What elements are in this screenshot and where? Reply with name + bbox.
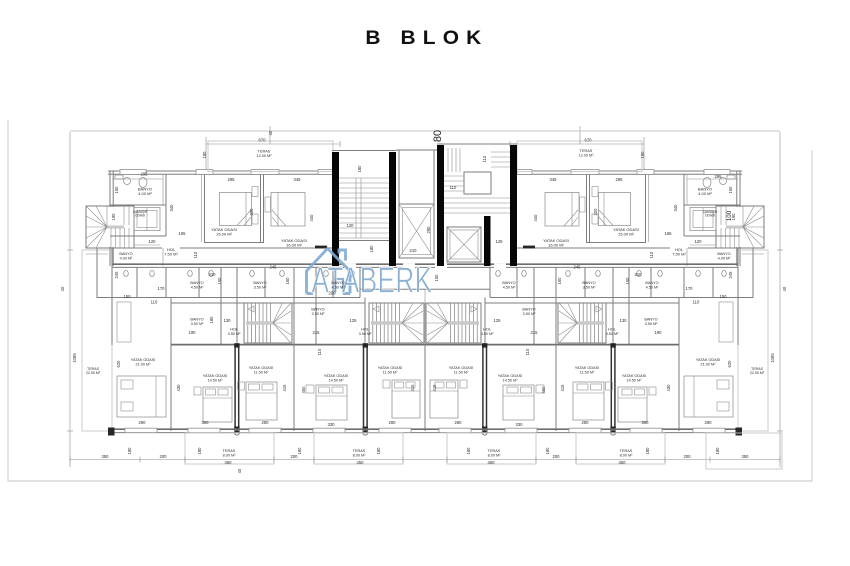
svg-text:180: 180 — [369, 245, 374, 253]
svg-text:350: 350 — [102, 454, 110, 459]
svg-text:190: 190 — [189, 330, 197, 335]
svg-text:150: 150 — [217, 277, 222, 285]
svg-text:170: 170 — [686, 286, 694, 291]
svg-text:245: 245 — [114, 271, 119, 279]
svg-text:110: 110 — [525, 348, 530, 355]
svg-text:295: 295 — [228, 177, 236, 182]
svg-text:415: 415 — [410, 384, 415, 392]
svg-text:ODASI: ODASI — [705, 214, 715, 218]
svg-text:290: 290 — [139, 420, 147, 425]
svg-text:280: 280 — [389, 420, 397, 425]
svg-text:620: 620 — [727, 360, 732, 368]
svg-text:350: 350 — [742, 454, 750, 459]
svg-text:330: 330 — [516, 422, 524, 427]
svg-text:320: 320 — [593, 208, 598, 216]
svg-text:290: 290 — [329, 291, 337, 296]
svg-text:110: 110 — [450, 185, 457, 190]
svg-text:120: 120 — [347, 223, 355, 228]
svg-text:22.50 M²: 22.50 M² — [86, 371, 101, 375]
svg-text:8.00 M²: 8.00 M² — [488, 453, 502, 457]
svg-text:215: 215 — [531, 330, 539, 335]
svg-text:450: 450 — [488, 460, 496, 465]
svg-text:130: 130 — [620, 318, 628, 323]
svg-text:TERAS: TERAS — [620, 449, 633, 453]
svg-text:3.50 M²: 3.50 M² — [228, 332, 242, 336]
svg-text:440: 440 — [533, 214, 538, 222]
svg-text:150: 150 — [625, 277, 630, 285]
svg-text:BANYO: BANYO — [645, 281, 658, 285]
svg-text:40: 40 — [782, 286, 787, 291]
svg-text:YATAK ODASI: YATAK ODASI — [449, 366, 473, 370]
svg-text:3.50 M²: 3.50 M² — [523, 312, 537, 316]
svg-text:3.50 M²: 3.50 M² — [191, 322, 205, 326]
svg-text:40: 40 — [60, 286, 65, 291]
svg-text:TERAS: TERAS — [353, 449, 366, 453]
svg-text:150: 150 — [124, 294, 132, 299]
svg-text:170: 170 — [158, 286, 166, 291]
svg-text:16.00 M²: 16.00 M² — [548, 243, 564, 248]
svg-text:180: 180 — [376, 447, 381, 455]
svg-text:7.50 M²: 7.50 M² — [672, 252, 686, 257]
svg-text:22.50 M²: 22.50 M² — [750, 371, 765, 375]
svg-text:200: 200 — [553, 454, 561, 459]
svg-text:180: 180 — [127, 447, 132, 455]
svg-text:4.50 M²: 4.50 M² — [332, 285, 346, 289]
svg-text:150: 150 — [434, 274, 439, 282]
svg-text:295: 295 — [141, 172, 149, 177]
svg-text:11.50 M²: 11.50 M² — [454, 370, 469, 374]
svg-text:3.50 M²: 3.50 M² — [583, 285, 597, 289]
svg-text:HOL: HOL — [230, 328, 238, 332]
svg-text:11.50 M²: 11.50 M² — [580, 370, 595, 374]
svg-text:3.50 M²: 3.50 M² — [645, 322, 659, 326]
svg-text:130: 130 — [224, 318, 232, 323]
svg-text:310: 310 — [209, 272, 217, 277]
svg-text:440: 440 — [309, 214, 314, 222]
svg-text:YATAK ODASI: YATAK ODASI — [622, 374, 646, 378]
svg-text:15.00 M²: 15.00 M² — [216, 232, 232, 237]
svg-text:125: 125 — [350, 318, 358, 323]
svg-text:21.00 M²: 21.00 M² — [136, 362, 152, 366]
svg-text:110: 110 — [193, 251, 198, 258]
svg-text:BANYO: BANYO — [119, 252, 132, 256]
svg-text:TERAS: TERAS — [258, 150, 271, 154]
svg-text:180: 180 — [202, 151, 207, 159]
svg-text:8.00 M²: 8.00 M² — [353, 453, 367, 457]
svg-text:415: 415 — [282, 384, 287, 392]
svg-text:180: 180 — [197, 447, 202, 455]
svg-text:110: 110 — [693, 300, 700, 305]
svg-text:BANYO: BANYO — [502, 281, 515, 285]
svg-text:165: 165 — [665, 231, 673, 236]
svg-text:100: 100 — [726, 210, 733, 221]
svg-text:BANYO: BANYO — [331, 281, 344, 285]
svg-text:YATAK ODASI: YATAK ODASI — [203, 374, 227, 378]
svg-text:290: 290 — [705, 420, 713, 425]
svg-text:12.00 M²: 12.00 M² — [257, 154, 273, 158]
svg-text:40: 40 — [237, 468, 242, 473]
svg-text:290: 290 — [426, 226, 431, 234]
svg-text:BANYO: BANYO — [717, 252, 730, 256]
svg-text:3.50 M²: 3.50 M² — [606, 332, 620, 336]
svg-text:11.50 M²: 11.50 M² — [254, 370, 269, 374]
svg-text:B BLOK: B BLOK — [365, 28, 488, 49]
svg-text:180: 180 — [715, 447, 720, 455]
svg-text:110: 110 — [317, 348, 322, 355]
svg-text:180: 180 — [640, 151, 645, 159]
svg-text:HOL: HOL — [483, 328, 491, 332]
svg-text:415: 415 — [560, 384, 565, 392]
svg-text:21.00 M²: 21.00 M² — [701, 362, 717, 366]
svg-text:310: 310 — [635, 272, 643, 277]
svg-text:YATAK ODASI: YATAK ODASI — [324, 374, 348, 378]
svg-text:HOL: HOL — [608, 328, 616, 332]
svg-text:4.50 M²: 4.50 M² — [503, 285, 517, 289]
svg-text:BANYO: BANYO — [190, 281, 203, 285]
svg-text:11.50 M²: 11.50 M² — [383, 370, 398, 374]
svg-text:150: 150 — [114, 186, 119, 194]
svg-text:200: 200 — [684, 454, 692, 459]
svg-text:3.50 M²: 3.50 M² — [359, 332, 373, 336]
svg-text:450: 450 — [225, 460, 233, 465]
svg-text:215: 215 — [313, 330, 321, 335]
svg-text:180: 180 — [466, 447, 471, 455]
svg-text:TERAS: TERAS — [488, 449, 501, 453]
svg-text:450: 450 — [301, 386, 306, 394]
svg-text:345: 345 — [294, 177, 302, 182]
svg-text:2.50 M²: 2.50 M² — [312, 312, 326, 316]
svg-text:YATAK ODASI: YATAK ODASI — [131, 358, 155, 362]
svg-text:4.00 M²: 4.00 M² — [718, 256, 732, 260]
svg-text:340: 340 — [673, 204, 678, 212]
svg-text:245: 245 — [728, 271, 733, 279]
svg-text:280: 280 — [582, 420, 590, 425]
svg-text:165: 165 — [179, 231, 187, 236]
svg-text:4.50 M²: 4.50 M² — [646, 285, 660, 289]
svg-text:YATAK ODASI: YATAK ODASI — [696, 358, 720, 362]
svg-text:4.50 M²: 4.50 M² — [191, 285, 205, 289]
svg-text:430: 430 — [176, 384, 181, 392]
svg-text:670: 670 — [259, 138, 267, 143]
svg-text:16.00 M²: 16.00 M² — [286, 243, 302, 248]
svg-text:180: 180 — [297, 447, 302, 455]
svg-text:415: 415 — [432, 384, 437, 392]
svg-text:450: 450 — [619, 460, 627, 465]
svg-text:BANYO: BANYO — [582, 281, 595, 285]
svg-text:180: 180 — [545, 447, 550, 455]
svg-text:YATAK ODASI: YATAK ODASI — [575, 366, 599, 370]
svg-text:1085: 1085 — [770, 353, 775, 363]
svg-text:330: 330 — [328, 422, 336, 427]
svg-text:450: 450 — [357, 460, 365, 465]
svg-text:15.00 M²: 15.00 M² — [618, 232, 634, 237]
svg-text:BANYO: BANYO — [253, 281, 266, 285]
svg-text:40: 40 — [268, 130, 273, 135]
svg-text:620: 620 — [116, 360, 121, 368]
svg-text:14.50 M²: 14.50 M² — [329, 378, 345, 382]
svg-text:YATAK ODASI: YATAK ODASI — [498, 374, 522, 378]
svg-text:180: 180 — [645, 447, 650, 455]
svg-text:BANYO: BANYO — [644, 318, 657, 322]
svg-text:14.50 M²: 14.50 M² — [503, 378, 519, 382]
svg-text:14.50 M²: 14.50 M² — [627, 378, 643, 382]
svg-text:150: 150 — [728, 186, 733, 194]
svg-text:3.50 M²: 3.50 M² — [481, 332, 495, 336]
svg-text:150: 150 — [557, 277, 562, 285]
svg-text:1085: 1085 — [72, 353, 77, 363]
svg-text:BANYO: BANYO — [311, 308, 324, 312]
svg-text:670: 670 — [585, 138, 593, 143]
svg-text:180: 180 — [209, 316, 214, 324]
svg-text:125: 125 — [496, 239, 504, 244]
svg-text:80: 80 — [432, 130, 444, 142]
svg-text:345: 345 — [550, 177, 558, 182]
svg-text:YATAK ODASI: YATAK ODASI — [378, 366, 402, 370]
svg-text:120: 120 — [149, 239, 157, 244]
svg-text:4.00 M²: 4.00 M² — [120, 256, 134, 260]
svg-text:190: 190 — [655, 330, 663, 335]
svg-text:120: 120 — [695, 239, 703, 244]
svg-text:280: 280 — [455, 420, 463, 425]
svg-text:8.00 M²: 8.00 M² — [223, 453, 237, 457]
svg-text:7.50 M²: 7.50 M² — [164, 252, 178, 257]
svg-text:180: 180 — [357, 165, 362, 173]
svg-text:150: 150 — [285, 277, 290, 285]
svg-text:TERAS: TERAS — [223, 449, 236, 453]
svg-text:150: 150 — [720, 294, 728, 299]
svg-text:3.50 M²: 3.50 M² — [254, 285, 268, 289]
svg-text:300: 300 — [202, 420, 210, 425]
svg-text:YATAK ODASI: YATAK ODASI — [249, 366, 273, 370]
svg-text:TERAS: TERAS — [580, 149, 593, 153]
svg-text:ODASI: ODASI — [135, 214, 145, 218]
svg-text:295: 295 — [715, 174, 723, 179]
svg-text:110: 110 — [649, 251, 654, 258]
svg-text:125: 125 — [494, 318, 502, 323]
svg-text:4.00 M²: 4.00 M² — [138, 191, 152, 196]
svg-text:430: 430 — [666, 384, 671, 392]
svg-text:BANYO: BANYO — [522, 308, 535, 312]
svg-text:12.00 M²: 12.00 M² — [579, 154, 595, 158]
svg-text:245: 245 — [574, 265, 582, 270]
svg-text:110: 110 — [151, 300, 158, 305]
svg-text:340: 340 — [169, 204, 174, 212]
svg-text:450: 450 — [541, 386, 546, 394]
svg-text:HOL: HOL — [361, 328, 369, 332]
svg-text:295: 295 — [616, 177, 624, 182]
svg-text:14.50 M²: 14.50 M² — [208, 378, 224, 382]
svg-text:200: 200 — [160, 454, 168, 459]
svg-text:4.00 M²: 4.00 M² — [698, 191, 712, 196]
svg-text:190: 190 — [111, 213, 116, 221]
svg-text:110: 110 — [482, 155, 487, 162]
svg-text:245: 245 — [270, 265, 278, 270]
svg-text:320: 320 — [249, 208, 254, 216]
svg-text:BANYO: BANYO — [190, 318, 203, 322]
svg-text:300: 300 — [642, 420, 650, 425]
svg-text:8.00 M²: 8.00 M² — [620, 453, 634, 457]
svg-text:210: 210 — [410, 248, 418, 253]
svg-text:280: 280 — [262, 420, 270, 425]
